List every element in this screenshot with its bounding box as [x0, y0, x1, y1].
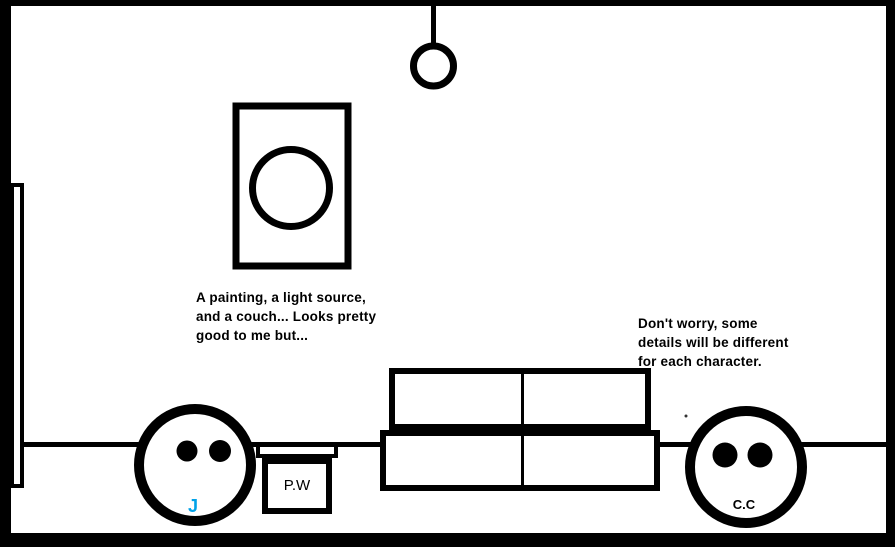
caption-right-line-2: details will be different	[638, 333, 789, 352]
ceiling-light	[414, 2, 454, 86]
caption-left-line-1: A painting, a light source,	[196, 288, 376, 307]
wall-bottom	[0, 533, 895, 547]
couch	[383, 371, 657, 488]
left-eye-of-j	[177, 441, 198, 462]
character-label-cc: C.C	[722, 497, 766, 512]
caption-right-line-1: Don't worry, some	[638, 314, 789, 333]
caption-right: Don't worry, some details will be differ…	[638, 314, 789, 371]
couch-backrest	[392, 371, 648, 427]
caption-right-line-3: for each character.	[638, 352, 789, 371]
painting-circle	[253, 150, 330, 227]
drawing-canvas: A painting, a light source, and a couch.…	[0, 0, 895, 547]
light-bulb	[414, 46, 454, 86]
painting	[236, 106, 348, 266]
couch-seat	[383, 433, 657, 488]
box-label-pw: P.W	[265, 477, 329, 494]
caption-left: A painting, a light source, and a couch.…	[196, 288, 376, 345]
wall-top	[0, 0, 895, 6]
wall-right	[886, 0, 895, 547]
door	[12, 185, 22, 486]
caption-left-line-3: good to me but...	[196, 326, 376, 345]
caption-left-line-2: and a couch... Looks pretty	[196, 307, 376, 326]
room-drawing	[0, 0, 895, 547]
right-eye-of-cc	[748, 443, 773, 468]
gift-box-lid	[258, 445, 336, 456]
stray-mark	[685, 415, 688, 418]
wall-left	[0, 0, 11, 547]
character-label-j: J	[178, 496, 208, 517]
left-eye-of-cc	[713, 443, 738, 468]
right-eye-of-j	[209, 440, 231, 462]
